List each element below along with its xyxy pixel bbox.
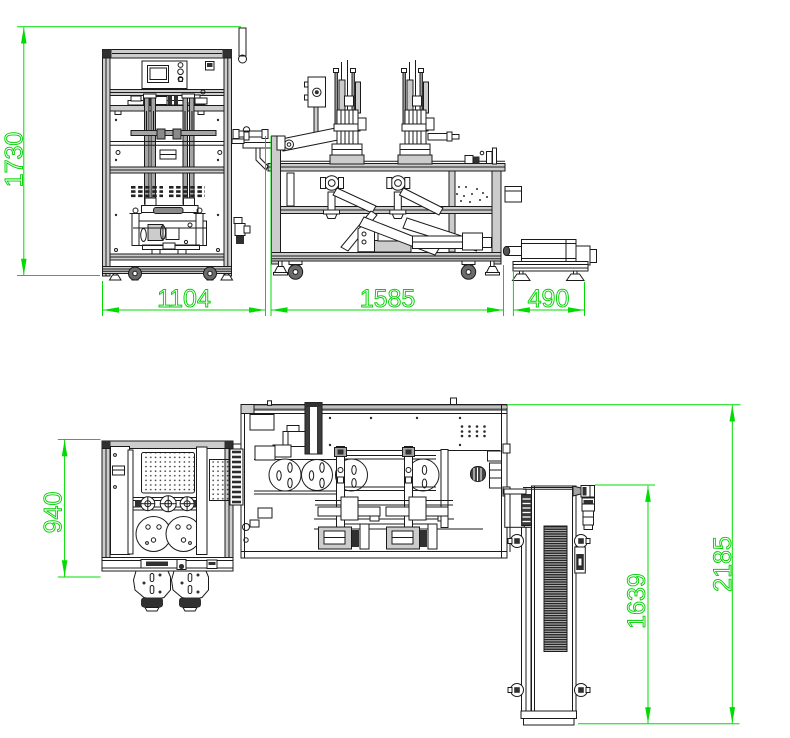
svg-text:1639: 1639 (623, 573, 651, 629)
svg-text:940: 940 (40, 492, 68, 534)
svg-text:490: 490 (528, 285, 570, 313)
svg-text:1104: 1104 (157, 285, 211, 313)
svg-text:2185: 2185 (709, 536, 737, 592)
svg-text:1730: 1730 (1, 132, 29, 188)
svg-text:1585: 1585 (360, 285, 416, 313)
